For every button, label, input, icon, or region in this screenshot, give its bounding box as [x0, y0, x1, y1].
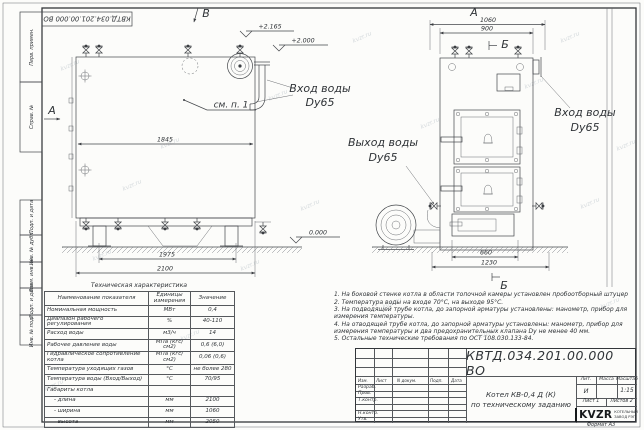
title-block: Изм. Лист N докум. Подп. Дата Разраб. Пр… — [355, 348, 636, 422]
kvzr-logo-text: KVZR — [579, 409, 612, 421]
outlet-valves — [427, 203, 544, 229]
inlet-pipe — [250, 62, 270, 110]
technical-notes: 1. На боковой стенке котла в области топ… — [334, 291, 635, 343]
table-row: Габариты котла — [45, 385, 235, 396]
svg-text:В: В — [202, 7, 210, 20]
table-row: Гидравлическое сопротивление котла МПа (… — [45, 352, 235, 365]
door-handle — [441, 186, 462, 191]
spec-cell: Рабочее давление воды — [45, 339, 149, 352]
spec-cell: мм — [149, 396, 191, 407]
top-stamp-number: КВТД.034.201.00.000 ВО — [43, 15, 131, 23]
company-logo: KVZR КОТЕЛЬНЫЙ ЗАВОД РЭП — [576, 406, 637, 423]
spec-cell: 40-110 — [191, 316, 235, 329]
sheets-total: Листов 2 — [606, 398, 637, 406]
svg-text:Выход воды: Выход воды — [348, 136, 418, 149]
spec-cell: 2100 — [191, 396, 235, 407]
technical-characteristics: Техническая характеристика Наименование … — [44, 282, 234, 428]
ground-line — [62, 247, 302, 253]
spec-cell: Расход воды — [45, 329, 149, 340]
dimension-1060: 1060 — [430, 17, 545, 50]
label-water-inlet-front: Вход воды Dy65 — [541, 76, 616, 134]
hatch-opening-hidden — [182, 58, 198, 74]
note-item: 4. На отводящей трубе котла, до запорной… — [334, 321, 635, 335]
inlet-flange-right — [533, 57, 541, 77]
ground-line-front — [372, 247, 568, 253]
spec-cell: м3/ч — [149, 329, 191, 340]
spec-header: Единицы измерения — [149, 292, 191, 306]
svg-text:Dy65: Dy65 — [369, 151, 398, 164]
svg-text:Вход воды: Вход воды — [289, 82, 351, 95]
drawing-title-line2: по техническому заданию — [471, 400, 571, 410]
spec-cell: МПа (кгс/см2) — [149, 339, 191, 352]
spec-cell: °С — [149, 364, 191, 375]
section-mark-bottom: Б — [492, 273, 508, 292]
company-name-line2: ЗАВОД РЭП — [614, 415, 638, 419]
lower-furnace-door — [441, 167, 522, 212]
spec-cell: 1060 — [191, 407, 235, 418]
svg-text:см. п. 1: см. п. 1 — [214, 101, 249, 111]
spec-header: Наименование показателя — [45, 292, 149, 306]
spec-cell: - высота — [45, 417, 149, 428]
lit-value: И — [576, 384, 596, 398]
label-water-inlet-side: Вход воды Dy65 — [256, 80, 351, 109]
spec-cell: Гидравлическое сопротивление котла — [45, 352, 149, 365]
frame-label: Подп. и дата — [29, 200, 35, 234]
col-header-dokum: N докум. — [397, 379, 416, 383]
blower-fan — [376, 205, 440, 250]
spec-cell: Номинальная мощность — [45, 306, 149, 317]
table-row: Рабочее давление воды МПа (кгс/см2) 0,6 … — [45, 339, 235, 352]
spec-cell: Габариты котла — [45, 385, 149, 396]
spec-cell: - длина — [45, 396, 149, 407]
spec-cell: мм — [149, 407, 191, 418]
row-label-tkontr: Т.контр. — [358, 399, 378, 404]
table-row: - ширина мм 1060 — [45, 407, 235, 418]
svg-text:Вход воды: Вход воды — [554, 106, 616, 119]
boiler-front-view: 900 1060 660 1230 А — [348, 6, 616, 292]
top-valves-front — [452, 46, 522, 58]
spec-cell: 2050 — [191, 417, 235, 428]
svg-text:2100: 2100 — [157, 266, 173, 273]
svg-text:0.000: 0.000 — [309, 230, 327, 237]
svg-text:Dy65: Dy65 — [306, 96, 335, 109]
view-title-A: А — [469, 6, 478, 19]
frame-label: Справ. № — [29, 105, 35, 129]
svg-text:660: 660 — [480, 250, 492, 257]
frame-label: Перв. примен. — [29, 28, 35, 66]
table-row: Диапазон рабочего регулирования % 40-110 — [45, 316, 235, 329]
spec-cell: °С — [149, 375, 191, 386]
boiler-side-view: 1845 1975 2100 +2.165 — [44, 7, 351, 277]
note-item: 2. Температура воды на входе 70°С, на вы… — [334, 299, 635, 306]
note-item: 5. Остальные технические требования по О… — [334, 335, 635, 342]
table-row: Расход воды м3/ч 14 — [45, 329, 235, 340]
spec-table: Наименование показателя Единицы измерени… — [44, 291, 235, 428]
spec-cell: 0,06 (0,6) — [191, 352, 235, 365]
company-name: КОТЕЛЬНЫЙ ЗАВОД РЭП — [614, 410, 638, 419]
spec-cell: Температура уходящих газов — [45, 364, 149, 375]
table-row: - длина мм 2100 — [45, 396, 235, 407]
spec-cell — [191, 385, 235, 396]
lit-header: Лит. — [576, 376, 596, 384]
format-label: Формат А3 — [566, 422, 636, 428]
section-mark-top: Б — [489, 38, 509, 51]
ash-box — [450, 214, 514, 236]
callout-see-note: см. п. 1 — [183, 99, 256, 111]
row-label-utv: Утв. — [358, 418, 368, 423]
svg-text:900: 900 — [481, 26, 493, 33]
svg-text:+2.000: +2.000 — [291, 38, 314, 45]
drawing-title: Котел КВ-0,4 Д (К) по техническому задан… — [466, 376, 576, 423]
spec-cell: 70/95 — [191, 375, 235, 386]
row-label-prov: Пров. — [358, 392, 371, 397]
drawing-title-line1: Котел КВ-0,4 Д (К) — [486, 390, 556, 400]
view-arrow-A: А — [44, 104, 60, 119]
table-row: Температура воды (Вход/Выход) °С 70/95 — [45, 375, 235, 386]
scale-value: 1:15 — [617, 384, 637, 398]
col-header-list: Лист — [376, 379, 387, 383]
svg-text:Б: Б — [501, 38, 509, 51]
note-item: 3. На подводящей трубе котла, до запорно… — [334, 306, 635, 320]
view-arrow-B: В — [194, 7, 210, 22]
col-header-data: Дата — [451, 379, 462, 383]
spec-cell: % — [149, 316, 191, 329]
svg-text:1060: 1060 — [480, 17, 496, 24]
row-label-razrab: Разраб. — [358, 386, 376, 391]
spec-table-title: Техническая характеристика — [44, 282, 234, 289]
col-header-izm: Изм. — [358, 379, 368, 383]
spec-cell: - ширина — [45, 407, 149, 418]
spec-cell: 0,6 (6,0) — [191, 339, 235, 352]
note-item: 1. На боковой стенке котла в области топ… — [334, 291, 635, 298]
spec-cell: 14 — [191, 329, 235, 340]
spec-cell: не более 280 — [191, 364, 235, 375]
elevation-mark-ground: 0.000 — [290, 230, 340, 244]
mass-header: Масса — [596, 376, 617, 384]
document-number: КВТД.034.201.00.000 ВО — [466, 349, 637, 376]
spec-header: Значение — [191, 292, 235, 306]
svg-text:1230: 1230 — [481, 260, 497, 267]
label-water-outlet: Выход воды Dy65 — [348, 136, 434, 204]
frame-label: Инв. № подл. — [29, 313, 35, 348]
sheet-number: Лист 1 — [576, 398, 606, 406]
svg-text:+2.165: +2.165 — [258, 24, 281, 31]
upper-furnace-door — [441, 110, 522, 164]
table-row: - высота мм 2050 — [45, 417, 235, 428]
svg-text:1845: 1845 — [157, 137, 173, 144]
row-label-nkontr: Н.контр. — [358, 412, 379, 417]
col-header-podp: Подп. — [430, 379, 443, 383]
spec-cell: мм — [149, 417, 191, 428]
elevation-mark-mid: +2.000 — [273, 38, 328, 52]
elevation-mark-top: +2.165 — [240, 24, 294, 38]
kvzr-emblem-icon — [575, 408, 577, 422]
control-panel — [497, 74, 520, 91]
spec-cell — [149, 385, 191, 396]
top-valves — [83, 45, 244, 57]
door-handle — [441, 137, 462, 142]
dimension-1845: 1845 — [78, 137, 253, 145]
table-row: Температура уходящих газов °С не более 2… — [45, 364, 235, 375]
svg-text:Dy65: Dy65 — [571, 121, 600, 134]
spec-cell: Диапазон рабочего регулирования — [45, 316, 149, 329]
spec-cell: Температура воды (Вход/Выход) — [45, 375, 149, 386]
scale-header: Масштаб — [617, 376, 637, 384]
spec-cell: МВт — [149, 306, 191, 317]
svg-text:1975: 1975 — [159, 252, 175, 259]
spec-cell: МПа (кгс/см2) — [149, 352, 191, 365]
spec-cell: 0,4 — [191, 306, 235, 317]
table-row: Номинальная мощность МВт 0,4 — [45, 306, 235, 317]
drawing-sheet: kvzr.ru kvzr.ru kvzr.ru kvzr.ru kvzr.ru … — [0, 0, 644, 430]
svg-text:А: А — [47, 104, 56, 117]
